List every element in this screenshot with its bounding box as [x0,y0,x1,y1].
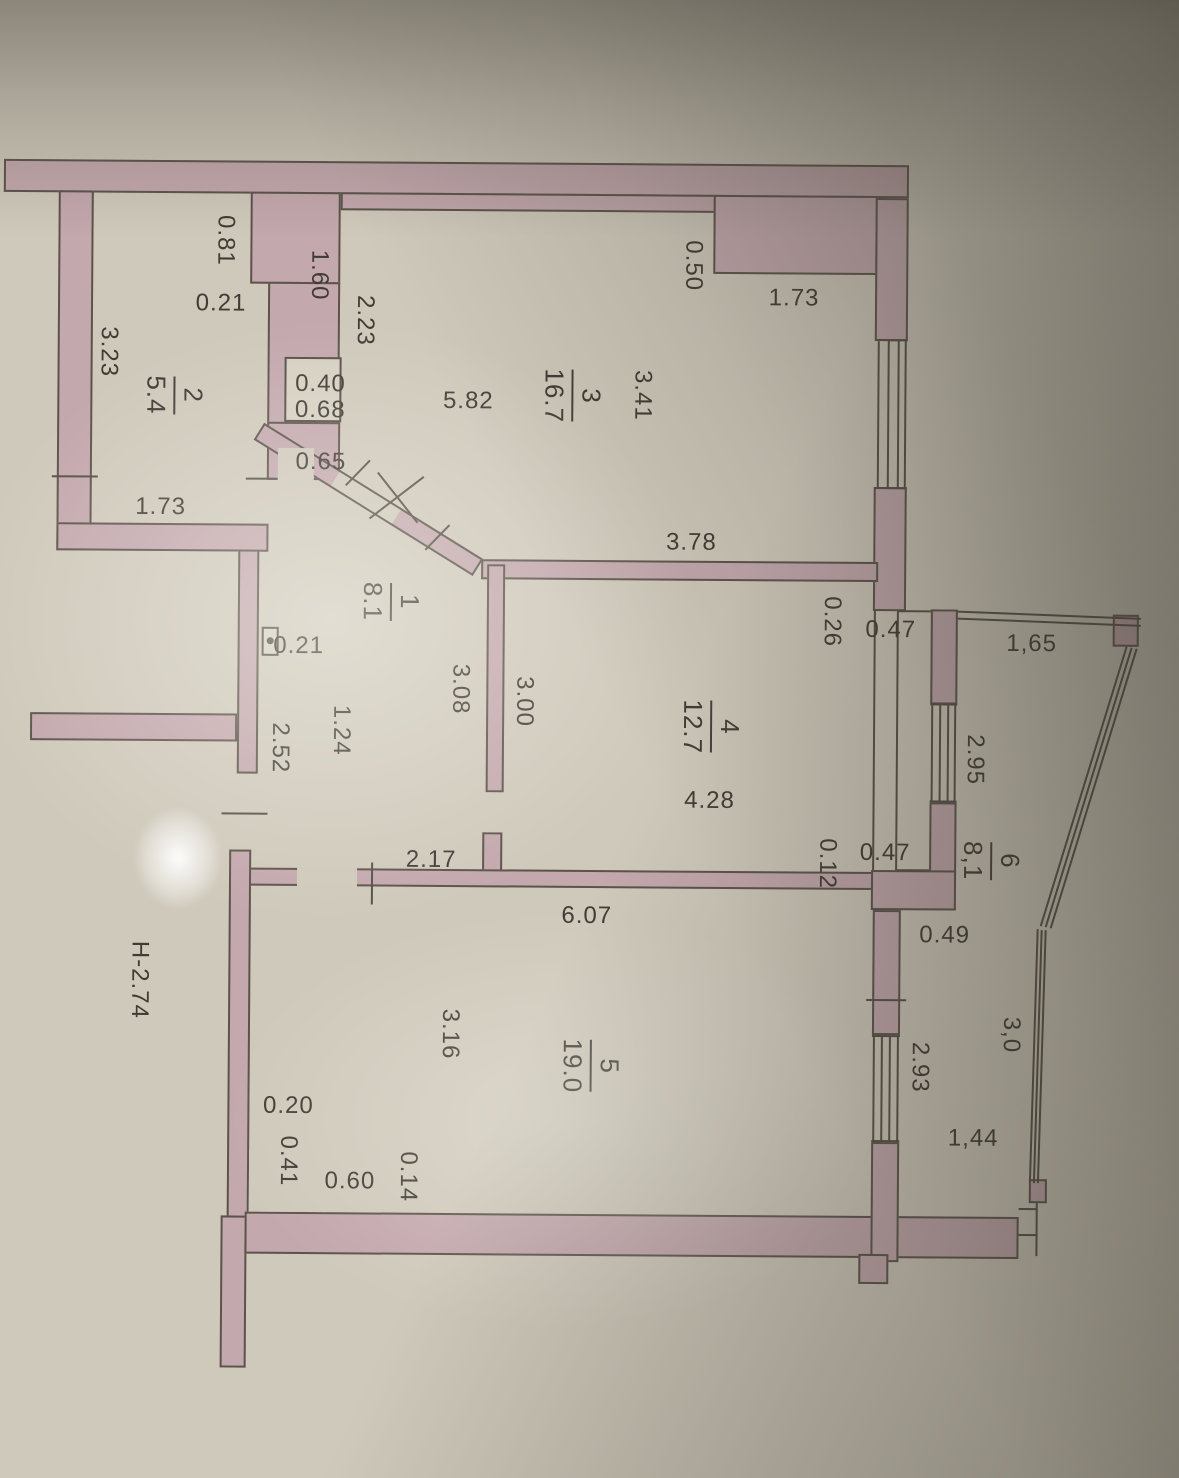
room-label-3: 3 16.7 [538,368,606,423]
wall-room2-bottom [56,522,268,551]
dim-0_12: 0.12 [813,838,841,889]
room-area: 8,1 [957,841,988,880]
dim-0_20: 0.20 [263,1092,314,1120]
room-label-2: 2 5.4 [140,375,208,415]
dim-0_41: 0.41 [274,1135,302,1186]
fraction-line [590,1040,592,1092]
dim-3_0: 3,0 [997,1017,1025,1054]
dim-2_23: 2.23 [351,295,379,346]
room-area: 12.7 [677,699,708,754]
room-number: 5 [594,1058,625,1074]
dim-1_44: 1,44 [948,1125,999,1153]
fraction-line [390,583,392,621]
dim-1_73-room2: 1.73 [135,493,186,521]
wall-right-bottom-ext [858,1254,888,1284]
dim-5_82: 5.82 [443,387,494,415]
room-number: 4 [714,719,745,735]
door-opening-room5 [297,866,357,888]
fraction-line [571,370,573,422]
dim-1_60: 1.60 [305,250,333,301]
door-opening-room4 [483,792,505,832]
balcony6-glazing [1041,646,1137,929]
room-area: 5.4 [140,375,171,414]
dim-3_41: 3.41 [628,370,656,421]
dim-0_49: 0.49 [919,921,970,949]
wall-room5-west [227,849,252,1219]
wall-right-mid [873,487,907,611]
room-label-4: 4 12.7 [677,699,745,754]
dim-3_08: 3.08 [446,664,474,715]
pier-outline [873,611,931,870]
wall-entry-stub [30,712,237,741]
dim-0_14: 0.14 [394,1151,422,1202]
dim-0_65: 0.65 [295,448,346,476]
dim-0_40: 0.40 [295,370,346,398]
door-opening-diagonal [331,472,401,524]
wall-room5-east-lower [870,1142,899,1262]
balcony5-connectors [1018,1203,1036,1256]
dim-0_68: 0.68 [295,396,346,424]
balcony5-corner-block [1029,1179,1047,1203]
room-number: 6 [994,853,1025,869]
room-label-6: 6 8,1 [957,841,1025,881]
dim-6_07: 6.07 [561,902,612,930]
dim-0_60: 0.60 [324,1167,375,1195]
dim-0_81: 0.81 [211,215,239,266]
dim-3_23: 3.23 [95,326,123,377]
dim-2_17: 2.17 [406,846,457,874]
dim-4_28: 4.28 [684,787,735,815]
room-label-5: 5 19.0 [557,1038,625,1093]
wall-right-corner [875,198,909,341]
wall-balcony6-lower [929,802,957,879]
wall-diagonal [254,423,484,576]
wall-top-room3 [341,192,716,213]
room-label-1: 1 8.1 [357,582,425,622]
wall-room3-room4-divider [481,559,878,582]
wall-junction-block [871,870,956,911]
room-number: 1 [394,594,425,610]
wall-bottom-left-strip [220,1215,247,1367]
window-balcony6 [930,704,958,801]
window-room5 [871,1036,900,1141]
wall-bottom [244,1212,1018,1259]
wall-room5-east-upper [872,910,901,1035]
floorplan-drawing: 3 16.7 2 5.4 1 8.1 4 12.7 5 19.0 6 8,1 [0,0,1179,1478]
dim-0_21-room2: 0.21 [196,289,247,317]
dim-0_50: 0.50 [679,240,707,291]
dim-1_24: 1.24 [327,705,355,756]
dim-0_47-bottom: 0.47 [860,839,911,867]
dim-3_78: 3.78 [666,529,717,557]
room-number: 3 [575,388,606,404]
fraction-line [990,842,992,880]
dim-0_26: 0.26 [818,596,846,647]
balcony5-glazing [1030,929,1046,1183]
dim-1_65: 1,65 [1006,630,1057,658]
dim-1_73-top: 1.73 [769,284,820,312]
balcony6-corner-block [1113,615,1139,647]
wall-step-notch-b [265,1202,327,1212]
floorplan-photo: 3 16.7 2 5.4 1 8.1 4 12.7 5 19.0 6 8,1 [0,0,1179,1478]
dim-2_95: 2.95 [961,734,989,785]
dim-3_16: 3.16 [436,1009,464,1060]
wall-room1-room4-divider [486,564,506,792]
dim-0_21-room1: 0.21 [273,632,324,660]
room-area: 8.1 [357,582,388,621]
fraction-line [710,701,712,753]
wall-balcony6 [930,609,958,704]
room-area: 19.0 [557,1038,588,1093]
wall-step-notch-a [249,1150,265,1212]
dim-2_52: 2.52 [266,722,294,773]
window-room3 [876,340,908,488]
wall-room1-west [237,550,260,774]
fraction-line [173,376,175,414]
room-area: 16.7 [538,368,569,423]
height-note: Н-2.74 [125,941,154,1019]
dim-0_47-top: 0.47 [865,616,916,644]
dim-2_93: 2.93 [906,1042,934,1093]
room-number: 2 [177,387,208,403]
dim-3_00: 3.00 [510,676,538,727]
wall-top-thick [713,195,878,275]
wall-left-outer [56,190,94,550]
